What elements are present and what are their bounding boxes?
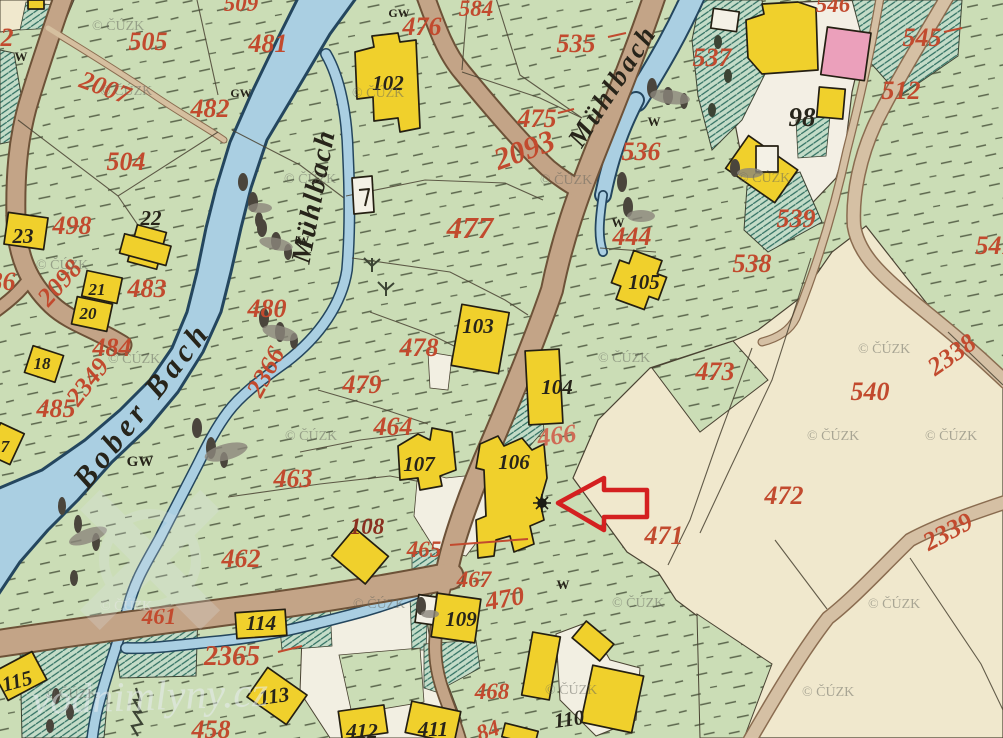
svg-text:478: 478: [399, 333, 439, 362]
svg-text:© ČÚZK: © ČÚZK: [45, 685, 97, 702]
svg-text:540: 540: [851, 377, 890, 406]
svg-text:473: 473: [695, 357, 735, 386]
svg-text:462: 462: [221, 544, 261, 573]
svg-text:537: 537: [693, 43, 733, 72]
svg-text:© ČÚZK: © ČÚZK: [36, 256, 88, 273]
svg-text:539: 539: [777, 204, 816, 233]
svg-text:© ČÚZK: © ČÚZK: [612, 594, 664, 611]
svg-text:584: 584: [459, 0, 494, 21]
svg-text:546: 546: [816, 0, 851, 17]
svg-text:© ČÚZK: © ČÚZK: [92, 17, 144, 34]
svg-text:© ČÚZK: © ČÚZK: [925, 427, 977, 444]
svg-text:© ČÚZK: © ČÚZK: [353, 595, 405, 612]
svg-text:© ČÚZK: © ČÚZK: [284, 170, 336, 187]
svg-text:114: 114: [246, 611, 276, 635]
svg-text:104: 104: [541, 375, 573, 399]
svg-text:© ČÚZK: © ČÚZK: [285, 427, 337, 444]
svg-text:464: 464: [373, 412, 413, 441]
svg-text:482: 482: [190, 94, 230, 123]
svg-text:504: 504: [107, 147, 146, 176]
svg-text:481: 481: [248, 29, 288, 58]
svg-text:W: W: [648, 114, 661, 129]
svg-text:463: 463: [273, 464, 313, 493]
svg-text:© ČÚZK: © ČÚZK: [100, 82, 152, 99]
svg-text:466: 466: [534, 418, 578, 452]
svg-text:103: 103: [462, 314, 494, 338]
svg-text:W: W: [557, 577, 570, 592]
svg-text:498: 498: [52, 211, 92, 240]
svg-text:© ČÚZK: © ČÚZK: [868, 595, 920, 612]
svg-text:535: 535: [557, 29, 596, 58]
svg-text:465: 465: [406, 537, 442, 562]
svg-text:472: 472: [764, 481, 804, 510]
svg-text:© ČÚZK: © ČÚZK: [100, 597, 152, 614]
svg-text:© ČÚZK: © ČÚZK: [540, 171, 592, 188]
svg-text:© ČÚZK: © ČÚZK: [807, 427, 859, 444]
svg-text:© ČÚZK: © ČÚZK: [352, 84, 404, 101]
svg-text:18: 18: [34, 354, 52, 373]
svg-text:105: 105: [628, 270, 660, 294]
svg-text:W: W: [15, 49, 28, 64]
svg-text:108: 108: [350, 514, 385, 539]
svg-text:479: 479: [342, 370, 382, 399]
svg-text:20: 20: [79, 304, 98, 323]
svg-text:© ČÚZK: © ČÚZK: [108, 350, 160, 367]
svg-text:109: 109: [445, 607, 477, 631]
svg-text:107: 107: [403, 452, 436, 476]
svg-text:22: 22: [140, 206, 163, 230]
svg-text:512: 512: [882, 76, 921, 105]
svg-text:468: 468: [474, 679, 510, 704]
svg-text:411: 411: [417, 717, 448, 738]
svg-text:23: 23: [12, 224, 34, 248]
svg-text:480: 480: [247, 294, 287, 323]
svg-text:GW: GW: [230, 86, 251, 100]
svg-text:© ČÚZK: © ČÚZK: [545, 681, 597, 698]
svg-text:412: 412: [345, 719, 378, 738]
svg-text:458: 458: [191, 715, 231, 738]
svg-text:541: 541: [976, 231, 1003, 260]
svg-text:© ČÚZK: © ČÚZK: [802, 683, 854, 700]
svg-text:2365: 2365: [203, 641, 260, 672]
svg-text:© ČÚZK: © ČÚZK: [738, 169, 790, 186]
svg-text:110: 110: [552, 705, 586, 733]
svg-text:21: 21: [88, 280, 106, 299]
svg-text:471: 471: [644, 521, 684, 550]
svg-text:W: W: [612, 215, 625, 230]
svg-text:GW: GW: [388, 6, 409, 20]
svg-text:509: 509: [224, 0, 259, 16]
svg-text:GW: GW: [127, 454, 154, 470]
svg-text:545: 545: [903, 23, 942, 52]
svg-text:© ČÚZK: © ČÚZK: [858, 340, 910, 357]
svg-text:483: 483: [127, 274, 167, 303]
svg-text:© ČÚZK: © ČÚZK: [598, 349, 650, 366]
svg-text:538: 538: [733, 249, 772, 278]
svg-text:502: 502: [0, 23, 14, 52]
svg-text:106: 106: [498, 450, 530, 474]
svg-text:98: 98: [789, 102, 817, 132]
svg-text:536: 536: [622, 137, 661, 166]
svg-text:477: 477: [446, 210, 495, 245]
svg-text:486: 486: [0, 267, 16, 296]
